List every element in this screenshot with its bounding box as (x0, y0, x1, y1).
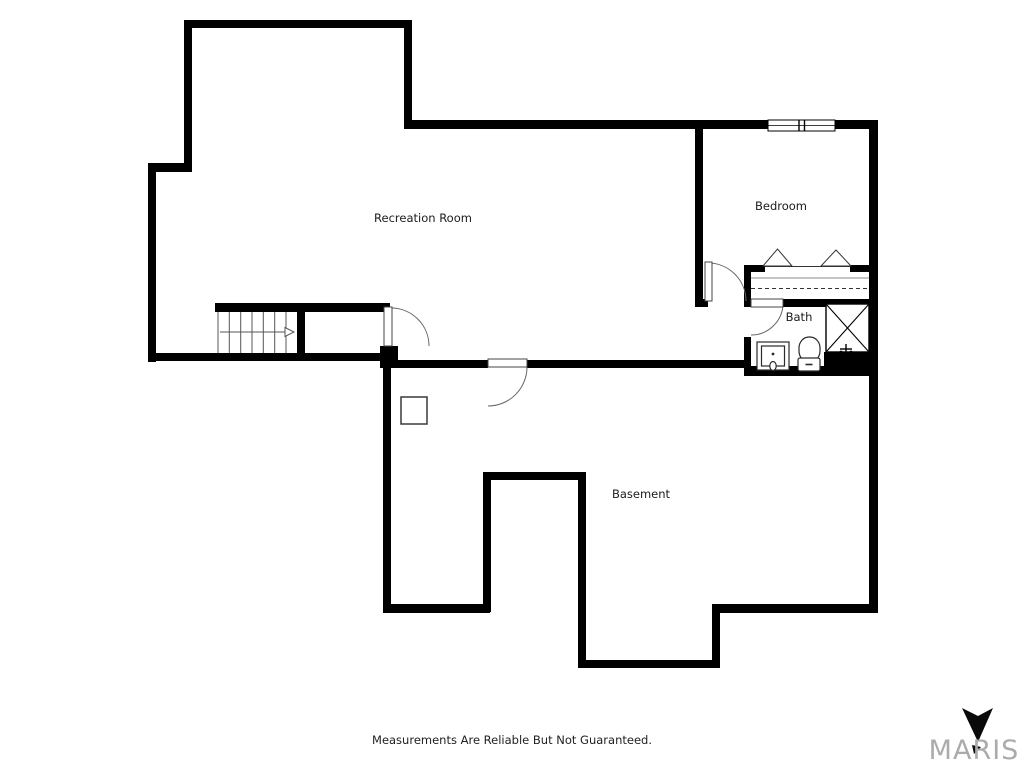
wall-notch-right (578, 472, 586, 668)
floorplan-page: Recreation Room Bedroom Bath Basement Me… (0, 0, 1024, 768)
wall-basement-step (712, 604, 720, 668)
wall-notch-left (483, 472, 491, 612)
shower-symbol (826, 304, 869, 353)
vanity-sink-symbol (757, 342, 789, 371)
wall-bedroom-left (695, 120, 703, 307)
wall-notch-top (483, 472, 586, 480)
wall-closet-top-stub-left (744, 265, 765, 272)
support-post-symbol (401, 397, 427, 424)
wall-shower-bottom-block (824, 352, 871, 376)
wall-south-basement-b (527, 360, 750, 368)
wall-basement-bottom-mid (578, 660, 720, 668)
wall-basement-bottom-left (383, 604, 490, 613)
wall-top-hall (404, 120, 768, 129)
bath-door (751, 299, 783, 335)
wall-stair-top (215, 303, 390, 312)
wall-stair-closet-divider (297, 312, 305, 353)
room-label-bath: Bath (786, 310, 813, 324)
bedroom-door (705, 262, 746, 301)
maris-logo: MARIS (929, 708, 1020, 766)
wall-left-upper (184, 20, 192, 170)
bifold-door-icon (763, 249, 792, 266)
wall-south-recreation (148, 353, 388, 361)
basement-door (488, 359, 527, 406)
wall-step-right (404, 20, 412, 127)
wall-top-recreation (184, 20, 412, 28)
staircase (218, 312, 294, 353)
bifold-door-icon (821, 250, 851, 266)
stair-up-arrow-icon (285, 328, 294, 337)
room-label-bedroom: Bedroom (755, 199, 807, 213)
room-label-basement: Basement (612, 487, 671, 501)
wall-basement-bottom-right (712, 604, 878, 613)
bedroom-window (768, 120, 835, 131)
floorplan-drawing: Recreation Room Bedroom Bath Basement Me… (0, 0, 1024, 768)
footer-disclaimer: Measurements Are Reliable But Not Guaran… (372, 733, 652, 747)
closet-door (384, 307, 429, 346)
maris-logo-text: MARIS (929, 735, 1020, 766)
toilet-symbol (798, 337, 820, 371)
room-label-recreation-room: Recreation Room (374, 211, 472, 225)
wall-closet-top-stub-right (850, 265, 877, 272)
wall-left-lower (148, 163, 156, 362)
wall-south-basement-a (388, 360, 488, 368)
wall-basement-left (383, 362, 391, 612)
interior-walls (215, 120, 877, 376)
